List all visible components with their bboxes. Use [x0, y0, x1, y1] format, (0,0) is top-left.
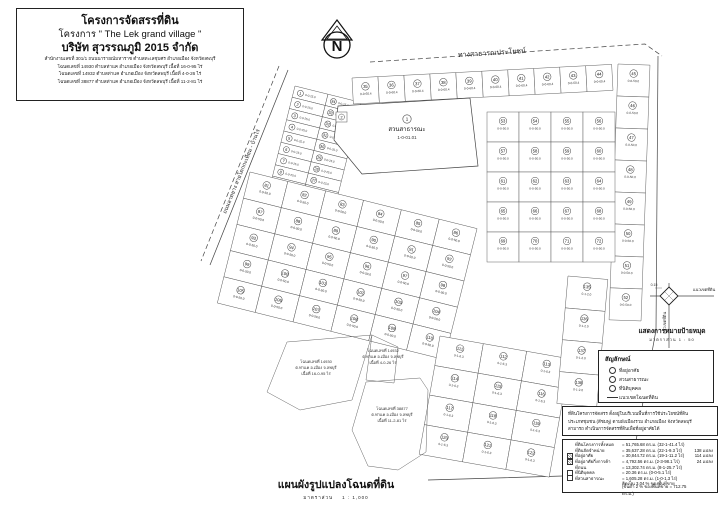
svg-text:0-0-50.0: 0-0-50.0 — [529, 127, 541, 131]
svg-text:0-0-50.0: 0-0-50.0 — [593, 247, 605, 251]
svg-text:0-0-50.0: 0-0-50.0 — [561, 217, 573, 221]
note-line: ที่ดินโครงการจัดสรร ตั้งอยู่ในบริเวณพื้น… — [568, 410, 712, 418]
svg-text:137: 137 — [578, 348, 586, 354]
project-name: โครงการ " The Lek grand village " — [17, 28, 243, 41]
svg-text:50: 50 — [626, 231, 632, 236]
corner-detail-caption: แสดงการหมายป้ายหมุด มาตราส่วน 1 : 50 — [624, 326, 720, 343]
svg-text:62: 62 — [533, 179, 538, 184]
svg-text:0-0-50.0: 0-0-50.0 — [497, 187, 509, 191]
svg-text:0-0-50.0: 0-0-50.0 — [593, 187, 605, 191]
svg-text:0-0-50.0: 0-0-50.0 — [624, 175, 636, 179]
svg-text:0-0-60.4: 0-0-60.4 — [594, 79, 606, 84]
svg-text:60: 60 — [597, 149, 602, 154]
deed-outline — [352, 378, 428, 470]
svg-text:53: 53 — [501, 119, 506, 124]
corner-detail-scale: มาตราส่วน 1 : 50 — [624, 336, 720, 343]
svg-text:65: 65 — [501, 209, 506, 214]
svg-text:0-0-50.0: 0-0-50.0 — [620, 303, 632, 307]
detail-boundary-label-h: แนวเขตที่ดิน — [693, 287, 715, 292]
deed-label: เนื้อที่ 4-0-26 ไร่ — [369, 358, 397, 365]
svg-text:45: 45 — [631, 71, 637, 76]
svg-text:0-0-50.0: 0-0-50.0 — [529, 157, 541, 161]
project-type-title: โครงการจัดสรรที่ดิน — [17, 14, 243, 28]
legend-item: สวนสาธารณะ — [605, 375, 707, 384]
svg-text:0-0-50.0: 0-0-50.0 — [529, 187, 541, 191]
svg-text:0-0-50.0: 0-0-50.0 — [497, 217, 509, 221]
svg-text:0-0-60.4: 0-0-60.4 — [568, 81, 580, 86]
deed-label: เนื้อที่ 11-2-81 ไร่ — [377, 416, 407, 423]
plan-scale: มาตราส่วน 1 : 1,000 — [236, 494, 436, 501]
north-arrow-icon: N — [322, 20, 352, 58]
deed-line-1: โฉนดเลขที่ 14930 ตำบลท่าแค อำเภอเมือง จั… — [17, 63, 243, 71]
svg-text:0-0-50.0: 0-0-50.0 — [625, 143, 637, 147]
hatch-swatch-icon — [567, 459, 575, 465]
svg-text:48: 48 — [628, 167, 634, 172]
svg-text:0-0-50.0: 0-0-50.0 — [561, 247, 573, 251]
company-name: บริษัท สุวรรณภูมิ 2015 จำกัด — [17, 41, 243, 55]
svg-text:0-0-50.0: 0-0-50.0 — [593, 127, 605, 131]
svg-text:59: 59 — [565, 149, 570, 154]
svg-text:46: 46 — [630, 103, 636, 108]
box-swatch-icon — [567, 475, 575, 481]
svg-text:72: 72 — [597, 239, 602, 244]
legend-item: ที่นิติบุคคล — [605, 384, 707, 393]
svg-text:0-0-60.4: 0-0-60.4 — [360, 91, 372, 96]
project-title-block: โครงการจัดสรรที่ดิน โครงการ " The Lek gr… — [16, 8, 244, 101]
plan-sheet: ทางสาธารณประโยชน์ถนนลาดยาง สายโคกกะเทียม… — [0, 0, 720, 515]
deed-line-3: โฉนดเลขที่ 38877 ตำบลท่าแค อำเภอเมือง จั… — [17, 78, 243, 86]
deed-label: โฉนดเลขที่ 14932 — [367, 348, 399, 353]
legend-item: แนวเขตโฉนดที่ดิน — [605, 393, 707, 402]
svg-text:71: 71 — [565, 239, 570, 244]
svg-text:0-0-60.4: 0-0-60.4 — [542, 82, 554, 87]
svg-text:49: 49 — [627, 199, 633, 204]
svg-text:0-0-50.0: 0-0-50.0 — [497, 157, 509, 161]
svg-text:47: 47 — [629, 135, 635, 140]
svg-text:70: 70 — [533, 239, 538, 244]
svg-text:0-0-50.0: 0-0-50.0 — [561, 127, 573, 131]
svg-text:67: 67 — [565, 209, 570, 214]
svg-text:135: 135 — [583, 284, 591, 290]
svg-text:66: 66 — [533, 209, 538, 214]
svg-text:69: 69 — [501, 239, 506, 244]
svg-text:63: 63 — [565, 179, 570, 184]
svg-text:0-0-50.0: 0-0-50.0 — [626, 111, 638, 115]
svg-text:56: 56 — [597, 119, 602, 124]
road-label: ทางสาธารณประโยชน์ — [458, 46, 527, 59]
svg-text:0-0-50.0: 0-0-50.0 — [561, 187, 573, 191]
lot-block-east-grid: 530-0-50.0540-0-50.0550-0-50.0560-0-50.0… — [487, 112, 615, 262]
svg-text:0-0-50.0: 0-0-50.0 — [529, 247, 541, 251]
office-address: สำนักงานเลขที่ 301/1 ถนนนารายณ์มหาราช ตำ… — [17, 55, 243, 63]
legend-title: สัญลักษณ์ — [605, 354, 707, 364]
lot-block-top-row: 350-0-60.4360-0-60.4370-0-60.4380-0-60.4… — [352, 64, 613, 104]
svg-text:0-0-60.4: 0-0-60.4 — [464, 86, 476, 91]
svg-text:55: 55 — [565, 119, 570, 124]
svg-text:61: 61 — [501, 179, 506, 184]
plan-title: แผนผังรูปแปลงโฉนดที่ดิน — [236, 476, 436, 493]
legend-item: ที่อยู่อาศัย — [605, 366, 707, 375]
legend-box: สัญลักษณ์ ที่อยู่อาศัย สวนสาธารณะ ที่นิต… — [598, 350, 714, 403]
svg-text:0-0-50.0: 0-0-50.0 — [529, 217, 541, 221]
svg-text:57: 57 — [501, 149, 506, 154]
juristic-symbol-icon — [605, 385, 619, 392]
svg-text:136: 136 — [581, 316, 589, 322]
land-statistics-box: ที่ดินโครงการทั้งหมด = 51,765.68 ตร.ม. (… — [562, 439, 718, 493]
svg-text:52: 52 — [623, 295, 629, 300]
svg-text:68: 68 — [597, 209, 602, 214]
zoning-note-box: ที่ดินโครงการจัดสรร ตั้งอยู่ในบริเวณพื้น… — [562, 406, 718, 436]
svg-text:0-0-50.0: 0-0-50.0 — [561, 157, 573, 161]
svg-text:0-0-50.0: 0-0-50.0 — [623, 207, 635, 211]
svg-text:0-0-50.0: 0-0-50.0 — [628, 79, 640, 83]
svg-text:0-0-50.0: 0-0-50.0 — [497, 127, 509, 131]
detail-dim: 0.15 — [651, 283, 658, 287]
deed-boundary-line-icon — [605, 397, 619, 398]
svg-text:0-0-50.0: 0-0-50.0 — [622, 239, 634, 243]
lot-block-south-grid: 1110-1-6.31120-1-6.31130-1-6.31140-1-6.3… — [419, 336, 570, 477]
svg-text:54: 54 — [533, 119, 538, 124]
note-line: สามารถ ดำเนินการจัดสรรที่ดินเพื่อที่อยู่… — [568, 425, 712, 433]
svg-text:51: 51 — [625, 263, 631, 268]
north-letter: N — [332, 38, 343, 55]
svg-text:64: 64 — [597, 179, 602, 184]
plan-footer-title: แผนผังรูปแปลงโฉนดที่ดิน มาตราส่วน 1 : 1,… — [236, 476, 436, 501]
svg-text:0-0-50.0: 0-0-50.0 — [593, 217, 605, 221]
deed-line-2: โฉนดเลขที่ 14932 ตำบลท่าแค อำเภอเมือง จั… — [17, 70, 243, 78]
residential-symbol-icon — [605, 367, 619, 374]
svg-text:0-0-60.4: 0-0-60.4 — [412, 89, 424, 94]
note-line: ประเภทชุมชน (สีชมพู) ตามผังเมืองรวม อำเภ… — [568, 418, 712, 426]
lot-block-mid-grid: 810-0-50.0820-0-50.0830-0-50.0840-0-50.0… — [217, 172, 477, 360]
svg-text:0-0-60.4: 0-0-60.4 — [438, 87, 450, 92]
park-label: สวนสาธารณะ — [388, 126, 425, 133]
deed-label: โฉนดเลขที่ 14930 — [300, 359, 332, 364]
svg-text:0-0-60.4: 0-0-60.4 — [490, 85, 502, 90]
svg-text:58: 58 — [533, 149, 538, 154]
park-area: 1-0-01.01 — [397, 135, 417, 140]
corner-detail-title: แสดงการหมายป้ายหมุด — [624, 326, 720, 336]
svg-text:2: 2 — [340, 115, 342, 119]
svg-text:0-0-50.0: 0-0-50.0 — [621, 271, 633, 275]
svg-text:0-0-60.4: 0-0-60.4 — [386, 90, 398, 95]
park-symbol-icon — [605, 376, 619, 383]
svg-text:0-0-50.0: 0-0-50.0 — [593, 157, 605, 161]
svg-text:0-0-50.0: 0-0-50.0 — [497, 247, 509, 251]
svg-text:0-0-60.4: 0-0-60.4 — [516, 83, 528, 88]
deed-label: โฉนดเลขที่ 38877 — [376, 406, 408, 411]
stats-row: (ขั้นต่ำ 2 % ของพื้นที่ขาย = 712.75 ตร.ม… — [567, 487, 713, 493]
svg-text:138: 138 — [575, 380, 583, 386]
deed-label: เนื้อที่ 16-0-95 ไร่ — [301, 369, 331, 376]
